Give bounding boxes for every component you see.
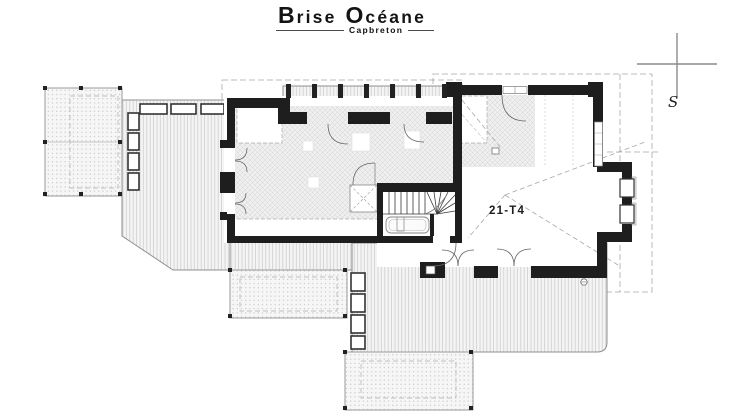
- subtitle: Capbreton: [349, 25, 403, 35]
- compass-south-label: S: [668, 93, 678, 111]
- title-word-1: rise: [297, 7, 337, 27]
- floor-plan-drawing: [0, 0, 750, 420]
- floor-plan-canvas: BriseOcéane Capbreton 21-T4 S: [0, 0, 750, 420]
- title-word-2: céane: [365, 7, 426, 27]
- plan-markers: [581, 279, 587, 285]
- entry-closet: [350, 185, 377, 212]
- bathroom: [386, 217, 429, 233]
- subtitle-line-right: [408, 30, 434, 31]
- unit-label: 21-T4: [489, 205, 525, 217]
- subtitle-line-left: [276, 30, 344, 31]
- compass-cross-icon: [637, 33, 717, 97]
- subtitle-row: Capbreton: [276, 25, 442, 35]
- bottom-deck-strip: [230, 240, 352, 270]
